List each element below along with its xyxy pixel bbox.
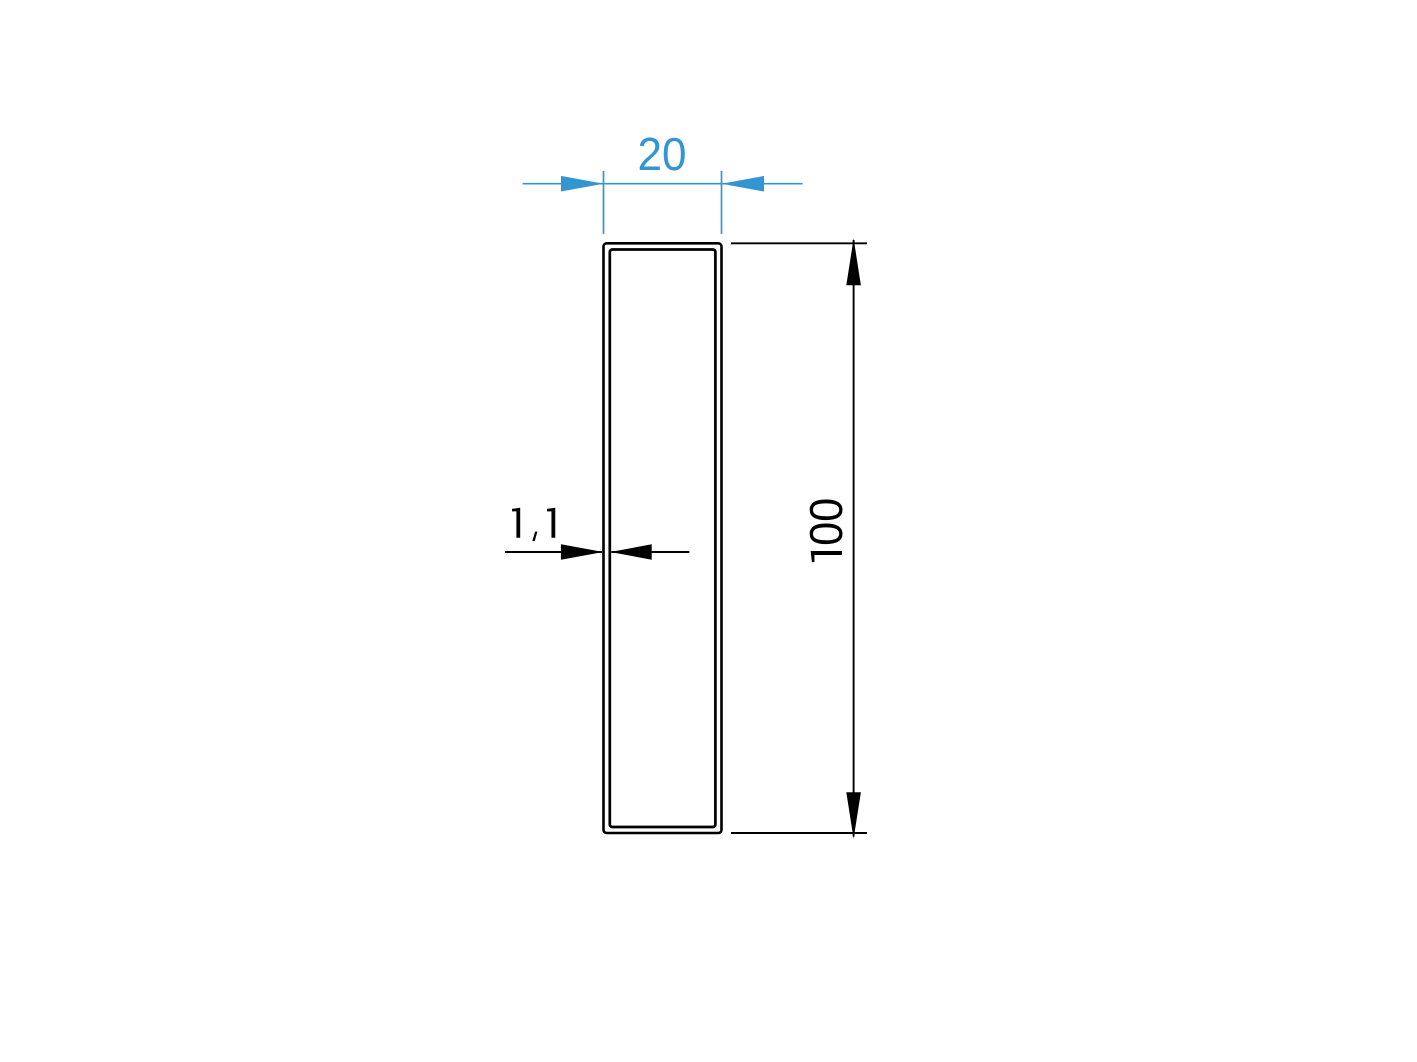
- svg-text:00: 00: [800, 498, 852, 546]
- svg-text:20: 20: [638, 128, 687, 180]
